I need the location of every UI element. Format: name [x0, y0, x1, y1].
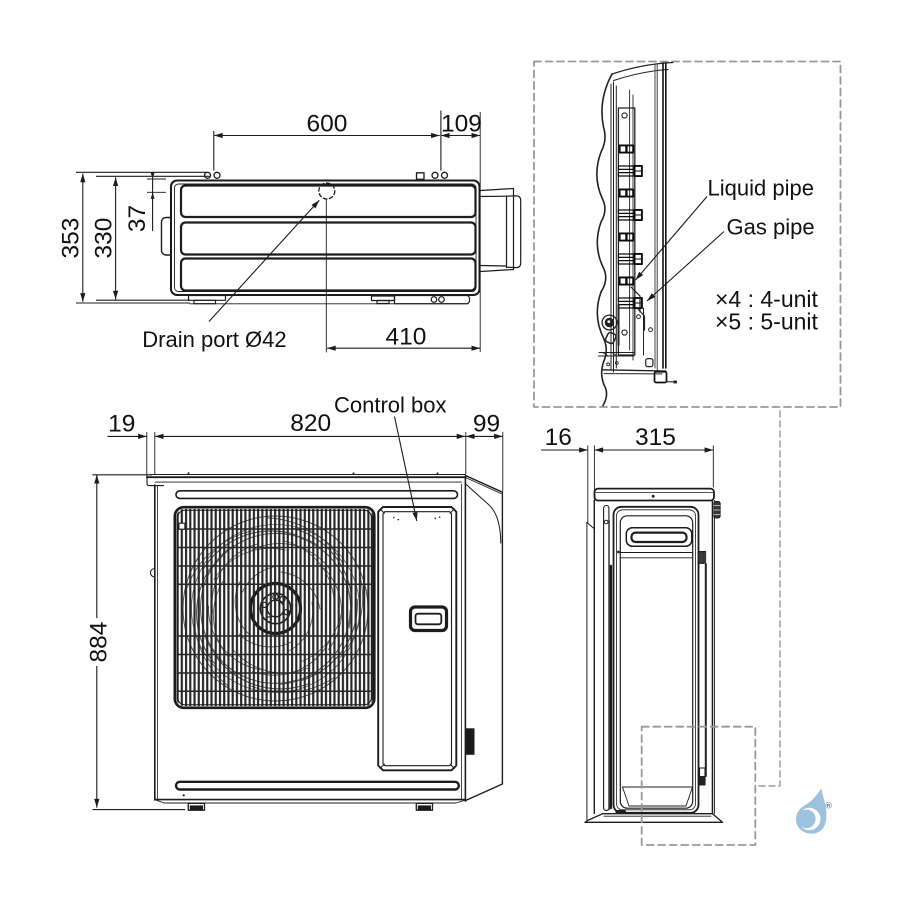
svg-text:315: 315 [635, 424, 676, 451]
svg-text:19: 19 [108, 411, 135, 438]
svg-text:353: 353 [58, 218, 85, 259]
svg-text:16: 16 [545, 424, 572, 451]
svg-text:99: 99 [473, 411, 500, 438]
svg-text:Control box: Control box [334, 393, 447, 418]
svg-text:×5 : 5-unit: ×5 : 5-unit [715, 309, 819, 335]
svg-text:Gas pipe: Gas pipe [727, 215, 815, 240]
svg-text:600: 600 [306, 111, 347, 138]
svg-text:37: 37 [124, 205, 151, 232]
svg-text:884: 884 [86, 622, 113, 663]
svg-text:410: 410 [386, 324, 427, 351]
svg-text:109: 109 [441, 111, 482, 138]
svg-text:330: 330 [91, 218, 118, 259]
svg-text:Liquid pipe: Liquid pipe [708, 176, 814, 201]
svg-text:820: 820 [290, 410, 331, 437]
svg-text:Drain port Ø42: Drain port Ø42 [142, 327, 286, 352]
